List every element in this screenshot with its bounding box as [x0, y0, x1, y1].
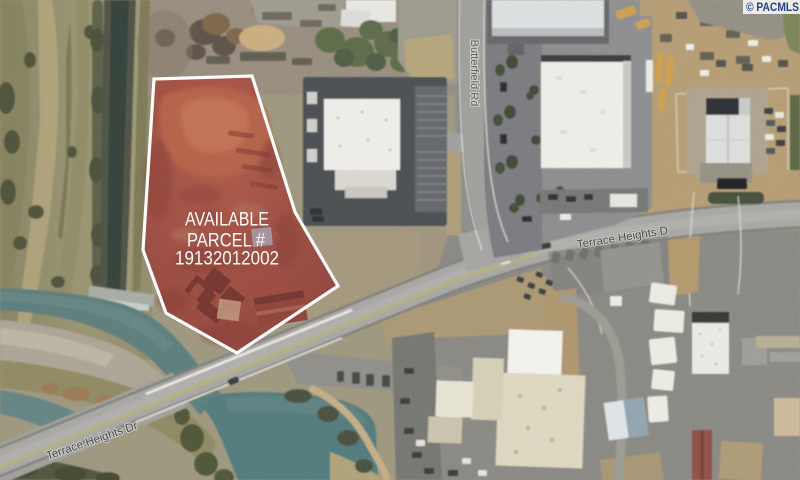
- svg-text:© PACMLS: © PACMLS: [746, 0, 799, 14]
